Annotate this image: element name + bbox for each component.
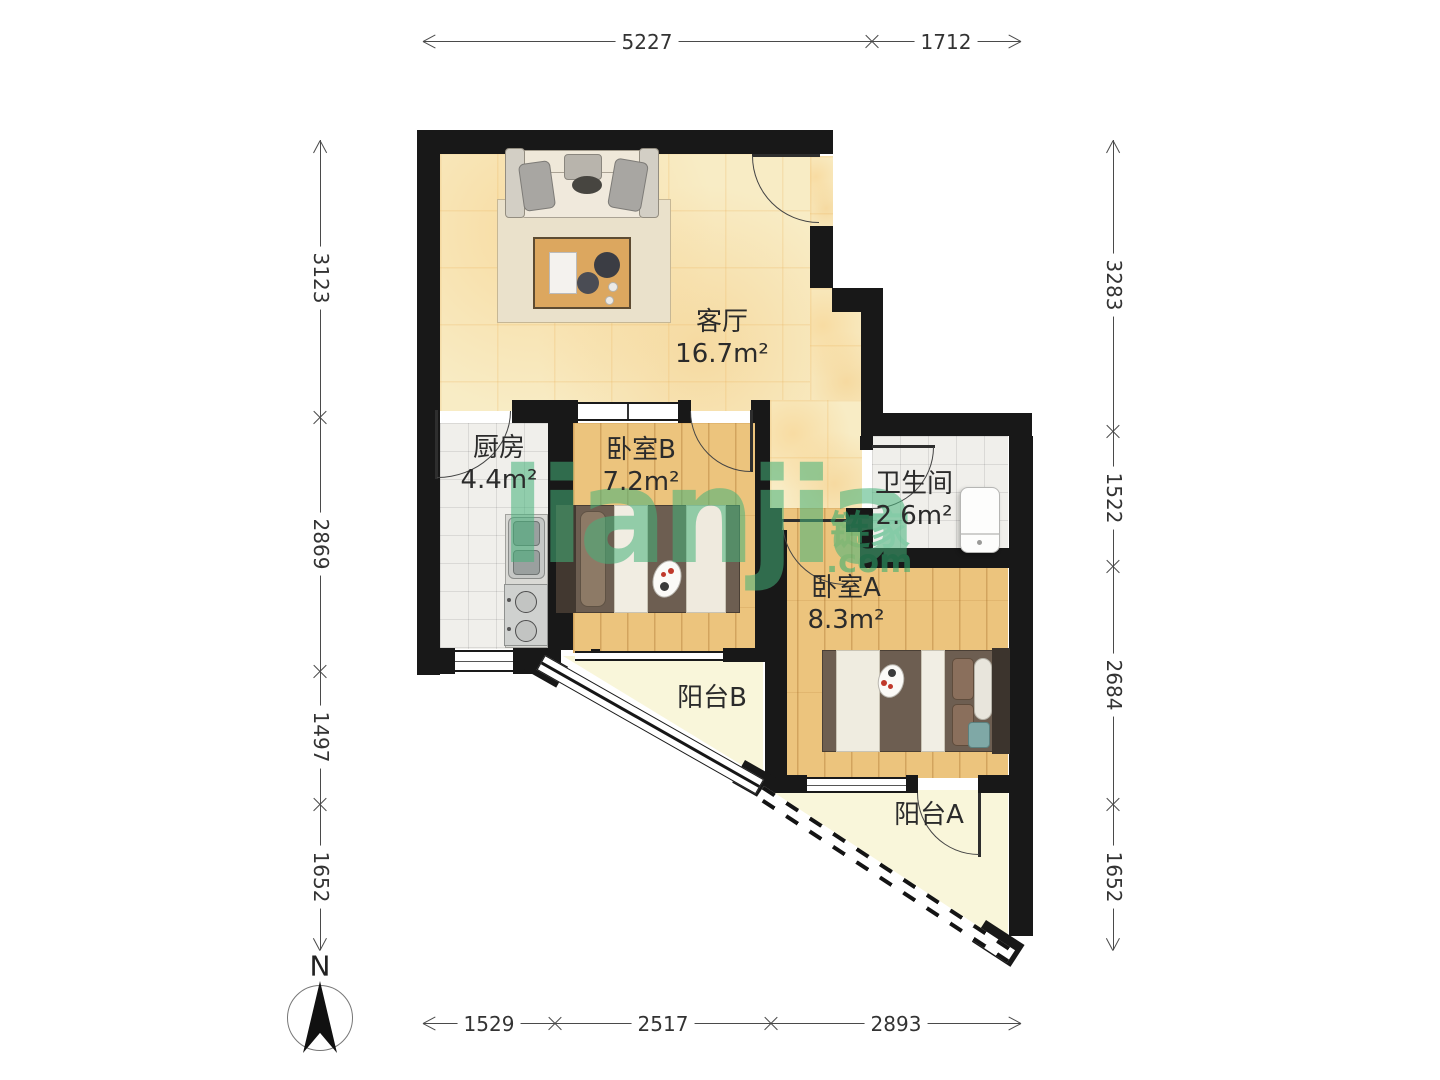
dimension-left-2: 2869 xyxy=(309,513,333,576)
dimension-top-1: 5227 xyxy=(616,30,679,54)
coffee-table-tray xyxy=(549,252,577,294)
wall-divider-a xyxy=(417,400,437,423)
wall-kitchen-bottom-left xyxy=(417,648,455,674)
room-label-living: 客厅 16.7m² xyxy=(675,306,769,370)
room-area: 2.6m² xyxy=(875,500,953,532)
room-name: 卧室A xyxy=(807,572,884,604)
bed-a-tray-dot-red1 xyxy=(881,680,887,686)
bed-b-tray-dot-dark xyxy=(660,582,669,591)
floor-plan: LIANJIA 链家 .com 客厅 16.7m² 厨房 4.4m² 卧室B 7… xyxy=(0,0,1440,1080)
stove-knob-1 xyxy=(507,598,511,602)
table-cup-1 xyxy=(608,282,618,292)
room-label-bedroom-b: 卧室B 7.2m² xyxy=(602,434,679,498)
bed-b-tray-dot-red1 xyxy=(668,568,674,574)
bed-a-pillow-teal xyxy=(968,722,990,748)
kitchen-sink-basin-2 xyxy=(513,550,540,575)
dimension-right-3: 2684 xyxy=(1102,654,1126,717)
room-name: 厨房 xyxy=(460,432,537,464)
window-bedrooma-bottom xyxy=(807,777,906,793)
wall-hall-right xyxy=(846,508,873,532)
bed-b-headboard xyxy=(556,505,576,613)
hallway-floor xyxy=(770,400,862,512)
sofa-ottoman xyxy=(572,176,602,194)
dimension-right-4: 1652 xyxy=(1102,846,1126,909)
stove-burner-2 xyxy=(515,620,537,642)
wall-right-mid xyxy=(861,312,883,415)
water-heater-dot xyxy=(977,540,982,545)
bed-a-tray-dot-red2 xyxy=(888,684,893,689)
dimension-left-1: 3123 xyxy=(309,247,333,310)
wall-bathroom-top xyxy=(861,413,1032,436)
dimension-bottom-3: 2893 xyxy=(865,1012,928,1036)
room-area: 8.3m² xyxy=(807,604,884,636)
room-name: 客厅 xyxy=(675,306,769,338)
room-area: 16.7m² xyxy=(675,338,769,370)
room-label-balcony-b: 阳台B xyxy=(677,682,747,714)
water-heater-panel-line xyxy=(961,533,999,535)
room-label-bedroom-a: 卧室A 8.3m² xyxy=(807,572,884,636)
bed-a-tray-dot-dark xyxy=(888,669,896,677)
bed-a-pillow-white xyxy=(974,658,992,720)
room-name: 卧室B xyxy=(602,434,679,466)
dimension-bottom-1: 1529 xyxy=(458,1012,521,1036)
stove-knob-2 xyxy=(507,627,511,631)
window-kitchen-bottom xyxy=(455,650,513,672)
window-bedroomb-top xyxy=(578,402,678,421)
wall-entry-stub xyxy=(810,226,833,288)
wall-step xyxy=(832,288,883,312)
table-bowl-small xyxy=(577,272,599,294)
window-bedroomb-balcony xyxy=(575,651,723,661)
bed-b-tray-dot-red2 xyxy=(661,572,666,577)
bed-a-pillow-brown-1 xyxy=(952,658,974,700)
wall-bedrooma-bottom-right xyxy=(978,775,1010,793)
bed-b-pillow xyxy=(580,511,606,607)
bed-b-blanket-2 xyxy=(686,505,726,613)
bed-a-headboard xyxy=(992,648,1010,754)
wall-bedrooma-left xyxy=(765,530,787,780)
room-label-kitchen: 厨房 4.4m² xyxy=(460,432,537,496)
room-name: 卫生间 xyxy=(875,468,953,500)
room-name: 阳台A xyxy=(894,799,964,831)
wall-bedrooma-bottom-jamb xyxy=(906,775,918,793)
sofa-pillow-left xyxy=(518,160,556,212)
dimension-right-1: 3283 xyxy=(1102,254,1126,317)
dimension-bottom-2: 2517 xyxy=(632,1012,695,1036)
dimension-top-2: 1712 xyxy=(915,30,978,54)
wall-bedroomb-bottom-right xyxy=(723,648,765,662)
table-bowl-large xyxy=(594,252,620,278)
balcony-b-floor xyxy=(563,656,763,778)
north-label: N xyxy=(310,950,331,983)
bed-a-blanket-1 xyxy=(836,650,880,752)
wall-divider-d xyxy=(751,400,770,423)
dimension-left-4: 1652 xyxy=(309,846,333,909)
bed-a-blanket-2 xyxy=(921,650,945,752)
table-cup-2 xyxy=(605,296,614,305)
wall-right-outer xyxy=(1009,436,1033,936)
dimension-right-2: 1522 xyxy=(1102,467,1126,530)
room-name: 阳台B xyxy=(677,682,747,714)
room-area: 4.4m² xyxy=(460,464,537,496)
room-area: 7.2m² xyxy=(602,466,679,498)
dimension-left-3: 1497 xyxy=(309,706,333,769)
bed-b-blanket-1 xyxy=(614,505,648,613)
room-label-bathroom: 卫生间 2.6m² xyxy=(875,468,953,532)
room-label-balcony-a: 阳台A xyxy=(894,799,964,831)
wall-hall-stub xyxy=(768,508,782,532)
kitchen-sink-basin-1 xyxy=(513,521,540,546)
stove-burner-1 xyxy=(515,591,537,613)
wall-divider-b xyxy=(512,400,578,423)
window-mullion xyxy=(627,404,629,419)
